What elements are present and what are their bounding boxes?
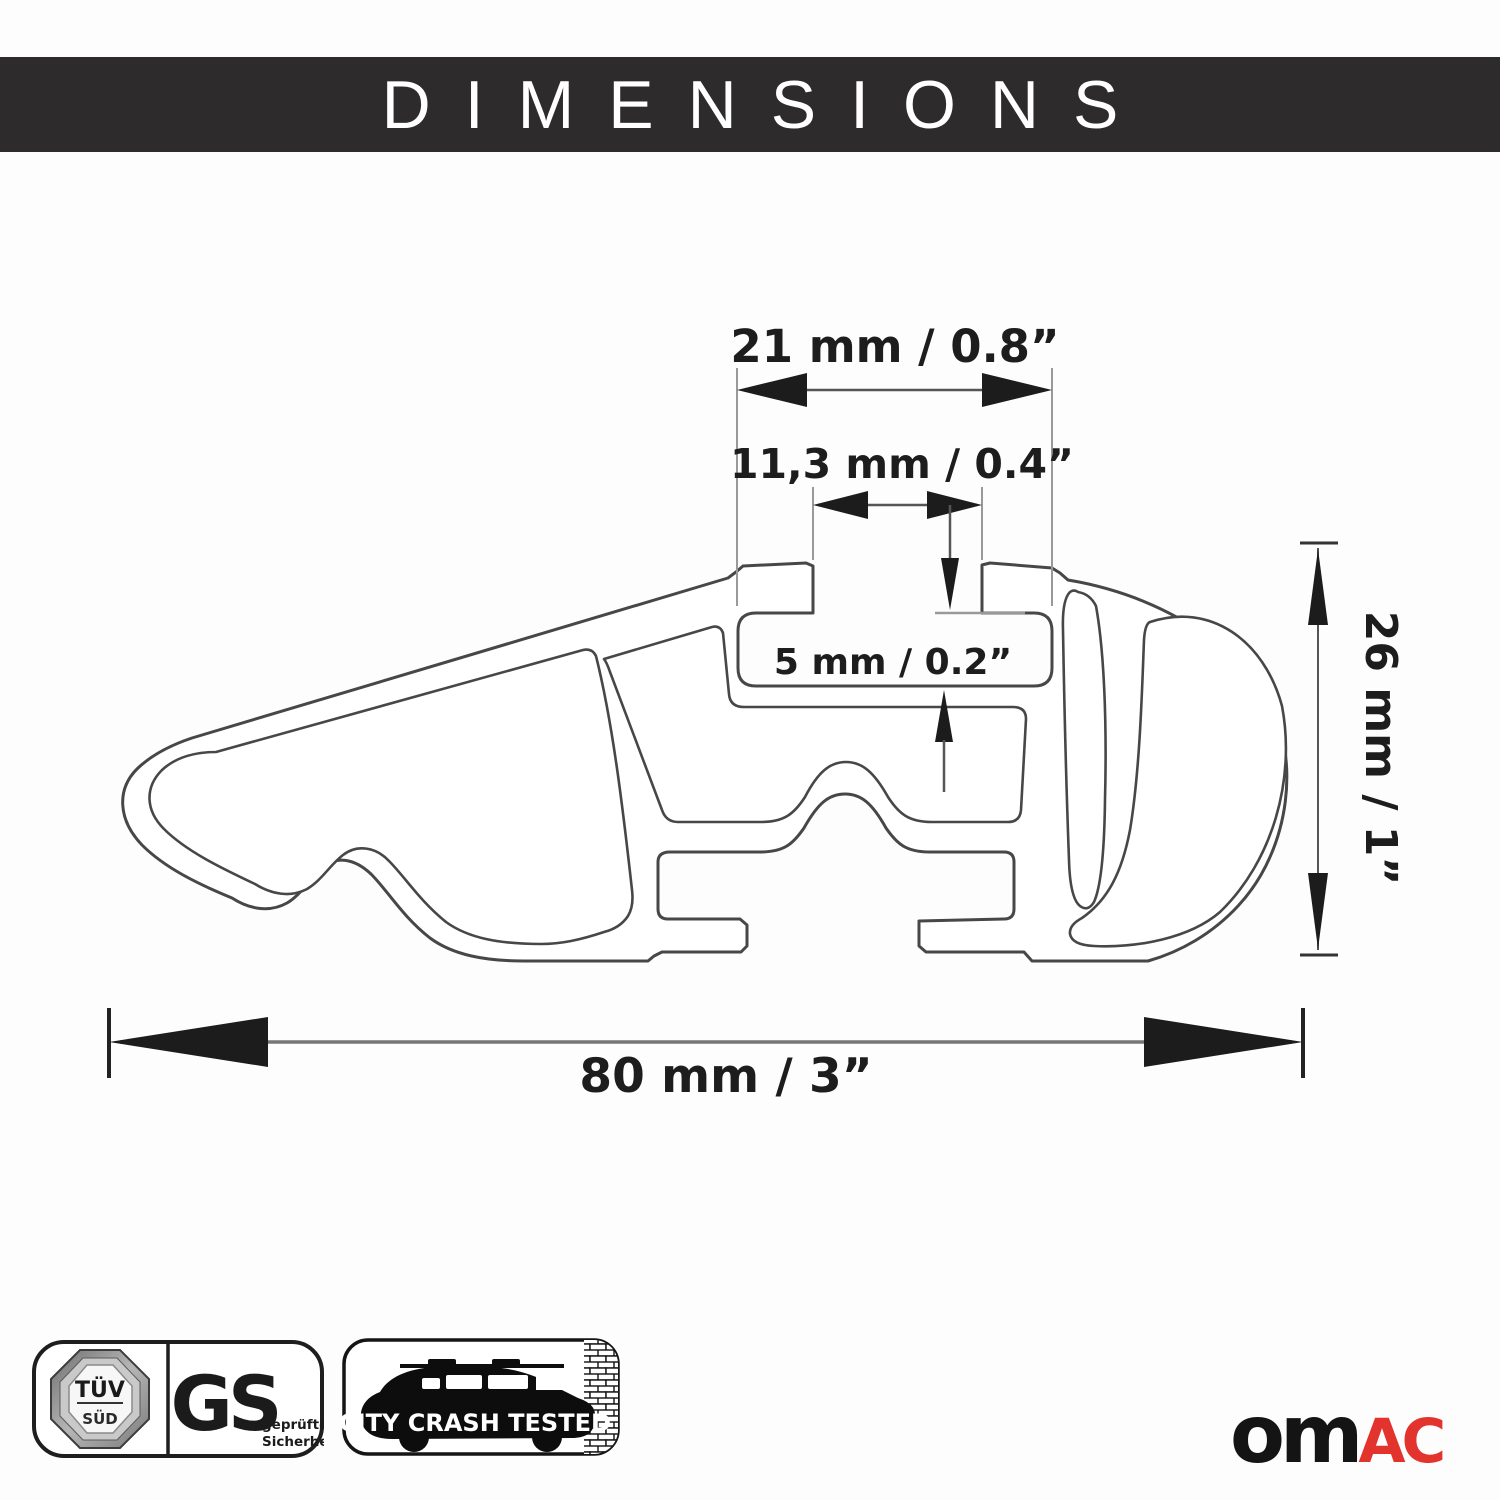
dimension-label-26mm: 26 mm / 1” [1355,611,1406,885]
omac-logo-red-part: AC [1358,1406,1442,1477]
omac-logo: omAC [1230,1395,1442,1475]
dimension-label-80mm: 80 mm / 3” [579,1049,872,1104]
arrowhead-right-icon [982,373,1052,407]
gs-subtext-line1: geprüfte [262,1417,324,1433]
dimension-26mm: 26 mm / 1” [1300,543,1406,955]
arrowhead-up-icon [1308,549,1328,625]
sud-text: SÜD [82,1409,117,1428]
crossbar-profile-diagram: 21 mm / 0.8” 11,3 mm / 0.4” 5 mm / 0.2” [0,0,1500,1500]
city-crash-tested-badge: CITY CRASH TESTED [342,1338,620,1456]
tuv-gs-badge: TÜV SÜD GS geprüfte Sicherheit [32,1340,324,1458]
arrowhead-down-icon [1308,873,1328,949]
dimension-label-11-3mm: 11,3 mm / 0.4” [730,440,1074,488]
dimension-80mm: 80 mm / 3” [109,1008,1303,1104]
crash-tested-label: CITY CRASH TESTED [342,1409,611,1437]
arrowhead-right-icon [1144,1017,1303,1067]
profile-sliver-chamber [1063,591,1106,909]
tuv-text: TÜV [75,1377,125,1403]
arrowhead-left-icon [813,491,868,519]
dimension-label-21mm: 21 mm / 0.8” [730,320,1059,373]
arrowhead-left-icon [737,373,807,407]
dimension-11-3mm: 11,3 mm / 0.4” [730,440,1074,560]
product-dimensions-image: DIMENSIONS 21 mm / 0.8” [0,0,1500,1500]
omac-logo-black-part: om [1230,1388,1358,1481]
profile-cross-section [123,563,1287,961]
arrowhead-right-icon [927,491,982,519]
tuv-sud-octagon-icon: TÜV SÜD [51,1350,149,1448]
arrowhead-down-icon [941,558,959,610]
dimension-label-5mm: 5 mm / 0.2” [774,642,1012,683]
gs-subtext-line2: Sicherheit [262,1434,324,1450]
arrowhead-left-icon [109,1017,268,1067]
